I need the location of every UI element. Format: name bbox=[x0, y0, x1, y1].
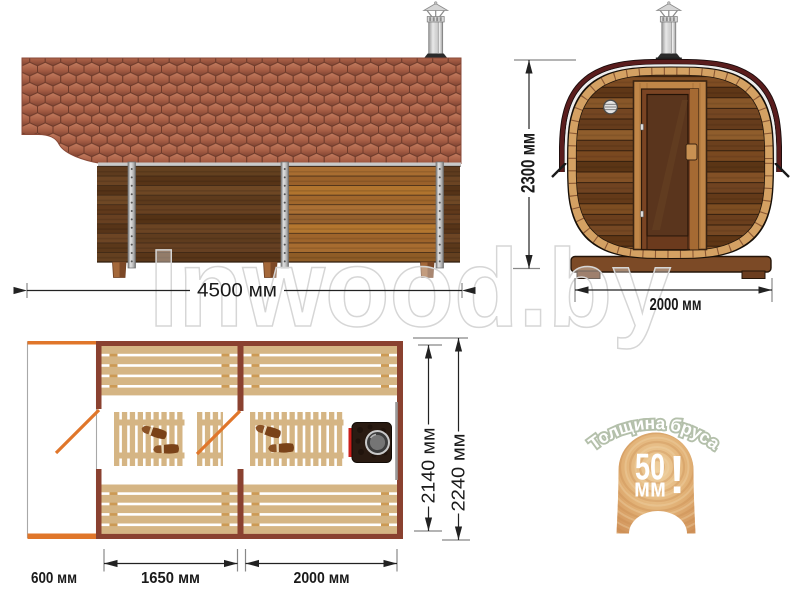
svg-text:1650 мм: 1650 мм bbox=[141, 570, 200, 587]
svg-text:мм: мм bbox=[634, 473, 666, 503]
svg-text:2000 мм: 2000 мм bbox=[650, 294, 702, 314]
svg-text:2140 мм: 2140 мм bbox=[418, 428, 439, 504]
svg-text:600 мм: 600 мм bbox=[31, 570, 77, 587]
svg-text:4500 мм: 4500 мм bbox=[197, 280, 277, 302]
svg-text:2240 мм: 2240 мм bbox=[448, 434, 469, 512]
svg-text:2300 мм: 2300 мм bbox=[519, 133, 540, 193]
svg-text:2000 мм: 2000 мм bbox=[294, 570, 350, 587]
